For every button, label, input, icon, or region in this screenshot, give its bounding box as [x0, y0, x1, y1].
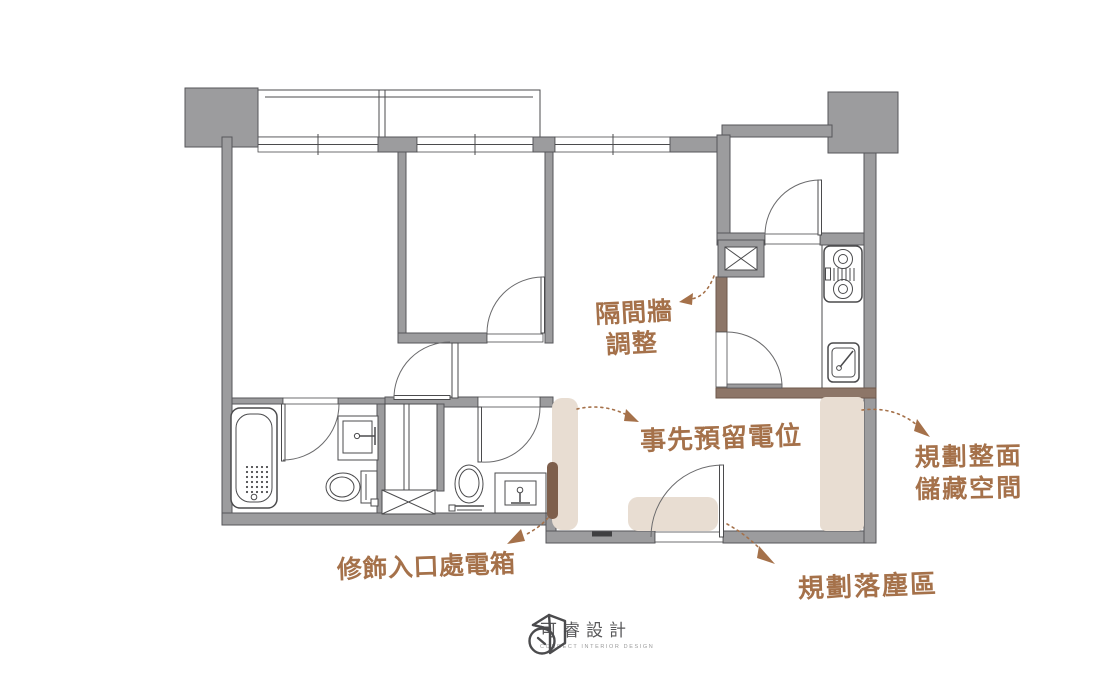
- wall-segment: [533, 137, 555, 152]
- annotation-line: 修飾入口處電箱: [337, 550, 516, 584]
- wall-segment: [222, 513, 556, 525]
- window: [258, 134, 378, 155]
- kitchen-sink: [828, 343, 859, 382]
- bathtub: [231, 408, 277, 508]
- annotation-line: 事先預留電位: [640, 420, 803, 456]
- wall-brown-segment: [716, 388, 876, 398]
- door-kitchen: [716, 332, 782, 388]
- arrow-reserve-outlet: [577, 407, 639, 422]
- window: [555, 134, 670, 155]
- vanity-sink-left: [338, 416, 378, 460]
- wall-segment: [717, 135, 730, 233]
- wall-segment: [338, 398, 385, 404]
- vanity-sink-right: [495, 473, 546, 513]
- arrow-dust-area: [727, 524, 775, 564]
- wall-segment: [437, 404, 444, 491]
- arrow-partition-wall: [679, 276, 714, 305]
- annotation-electrical-box: 修飾入口處電箱: [337, 549, 516, 586]
- annotation-line: 規劃落塵區: [798, 569, 939, 604]
- door-corridor: [394, 342, 450, 400]
- wall-segment: [820, 233, 864, 245]
- wall-segment: [545, 152, 553, 343]
- wall-segment: [864, 153, 876, 543]
- wall-segment: [398, 152, 406, 342]
- annotation-line: 儲藏空間: [915, 472, 1024, 506]
- gas-stove: [824, 246, 862, 302]
- wall-brown-segment: [716, 277, 727, 332]
- duct-shaft-kitchen: [718, 240, 764, 277]
- door-bedroom: [487, 277, 545, 342]
- wall-segment: [540, 397, 553, 407]
- company-logo: 可睿設計 CORRECT INTERIOR DESIGN: [528, 610, 654, 650]
- highlight-storage-area: [820, 397, 864, 531]
- annotation-dust-area: 規劃落塵區: [797, 568, 938, 605]
- annotation-storage: 規劃整面 儲藏空間: [914, 440, 1023, 506]
- door-bath-left: [282, 398, 340, 461]
- window: [417, 134, 533, 155]
- balcony: [258, 90, 540, 137]
- thin-partition: [452, 343, 458, 398]
- bedroom-walls: [398, 152, 553, 343]
- door-bath-right: [478, 397, 540, 462]
- wall-segment: [398, 333, 487, 343]
- logo-cube-icon: [528, 610, 568, 658]
- wall-segment: [232, 398, 283, 404]
- floor-plan-canvas: 隔間牆 調整 事先預留電位 規劃整面 儲藏空間 修飾入口處電箱 規劃落塵區 可睿…: [0, 0, 1100, 684]
- window-band: [258, 134, 722, 155]
- wall-segment: [670, 137, 722, 152]
- highlight-dust-area: [628, 497, 718, 531]
- door-foyer: [765, 180, 822, 244]
- wall-segment: [722, 125, 832, 137]
- annotation-line: 調整: [596, 327, 676, 362]
- threshold-mark: [592, 532, 612, 537]
- annotation-line: 規劃整面: [914, 442, 1022, 472]
- toilet-left: [326, 471, 378, 506]
- wardrobe: [385, 404, 437, 490]
- annotation-reserve-outlet: 事先預留電位: [639, 419, 802, 457]
- pillar-top-right: [828, 92, 898, 153]
- highlight-electrical-box: [547, 462, 558, 519]
- annotation-line: 隔間牆: [594, 297, 673, 329]
- wall-segment: [378, 137, 417, 152]
- toilet-right: [449, 465, 484, 511]
- annotation-partition-wall: 隔間牆 調整: [594, 296, 675, 362]
- wall-segment: [723, 531, 876, 543]
- duct-shaft-bath: [382, 490, 435, 514]
